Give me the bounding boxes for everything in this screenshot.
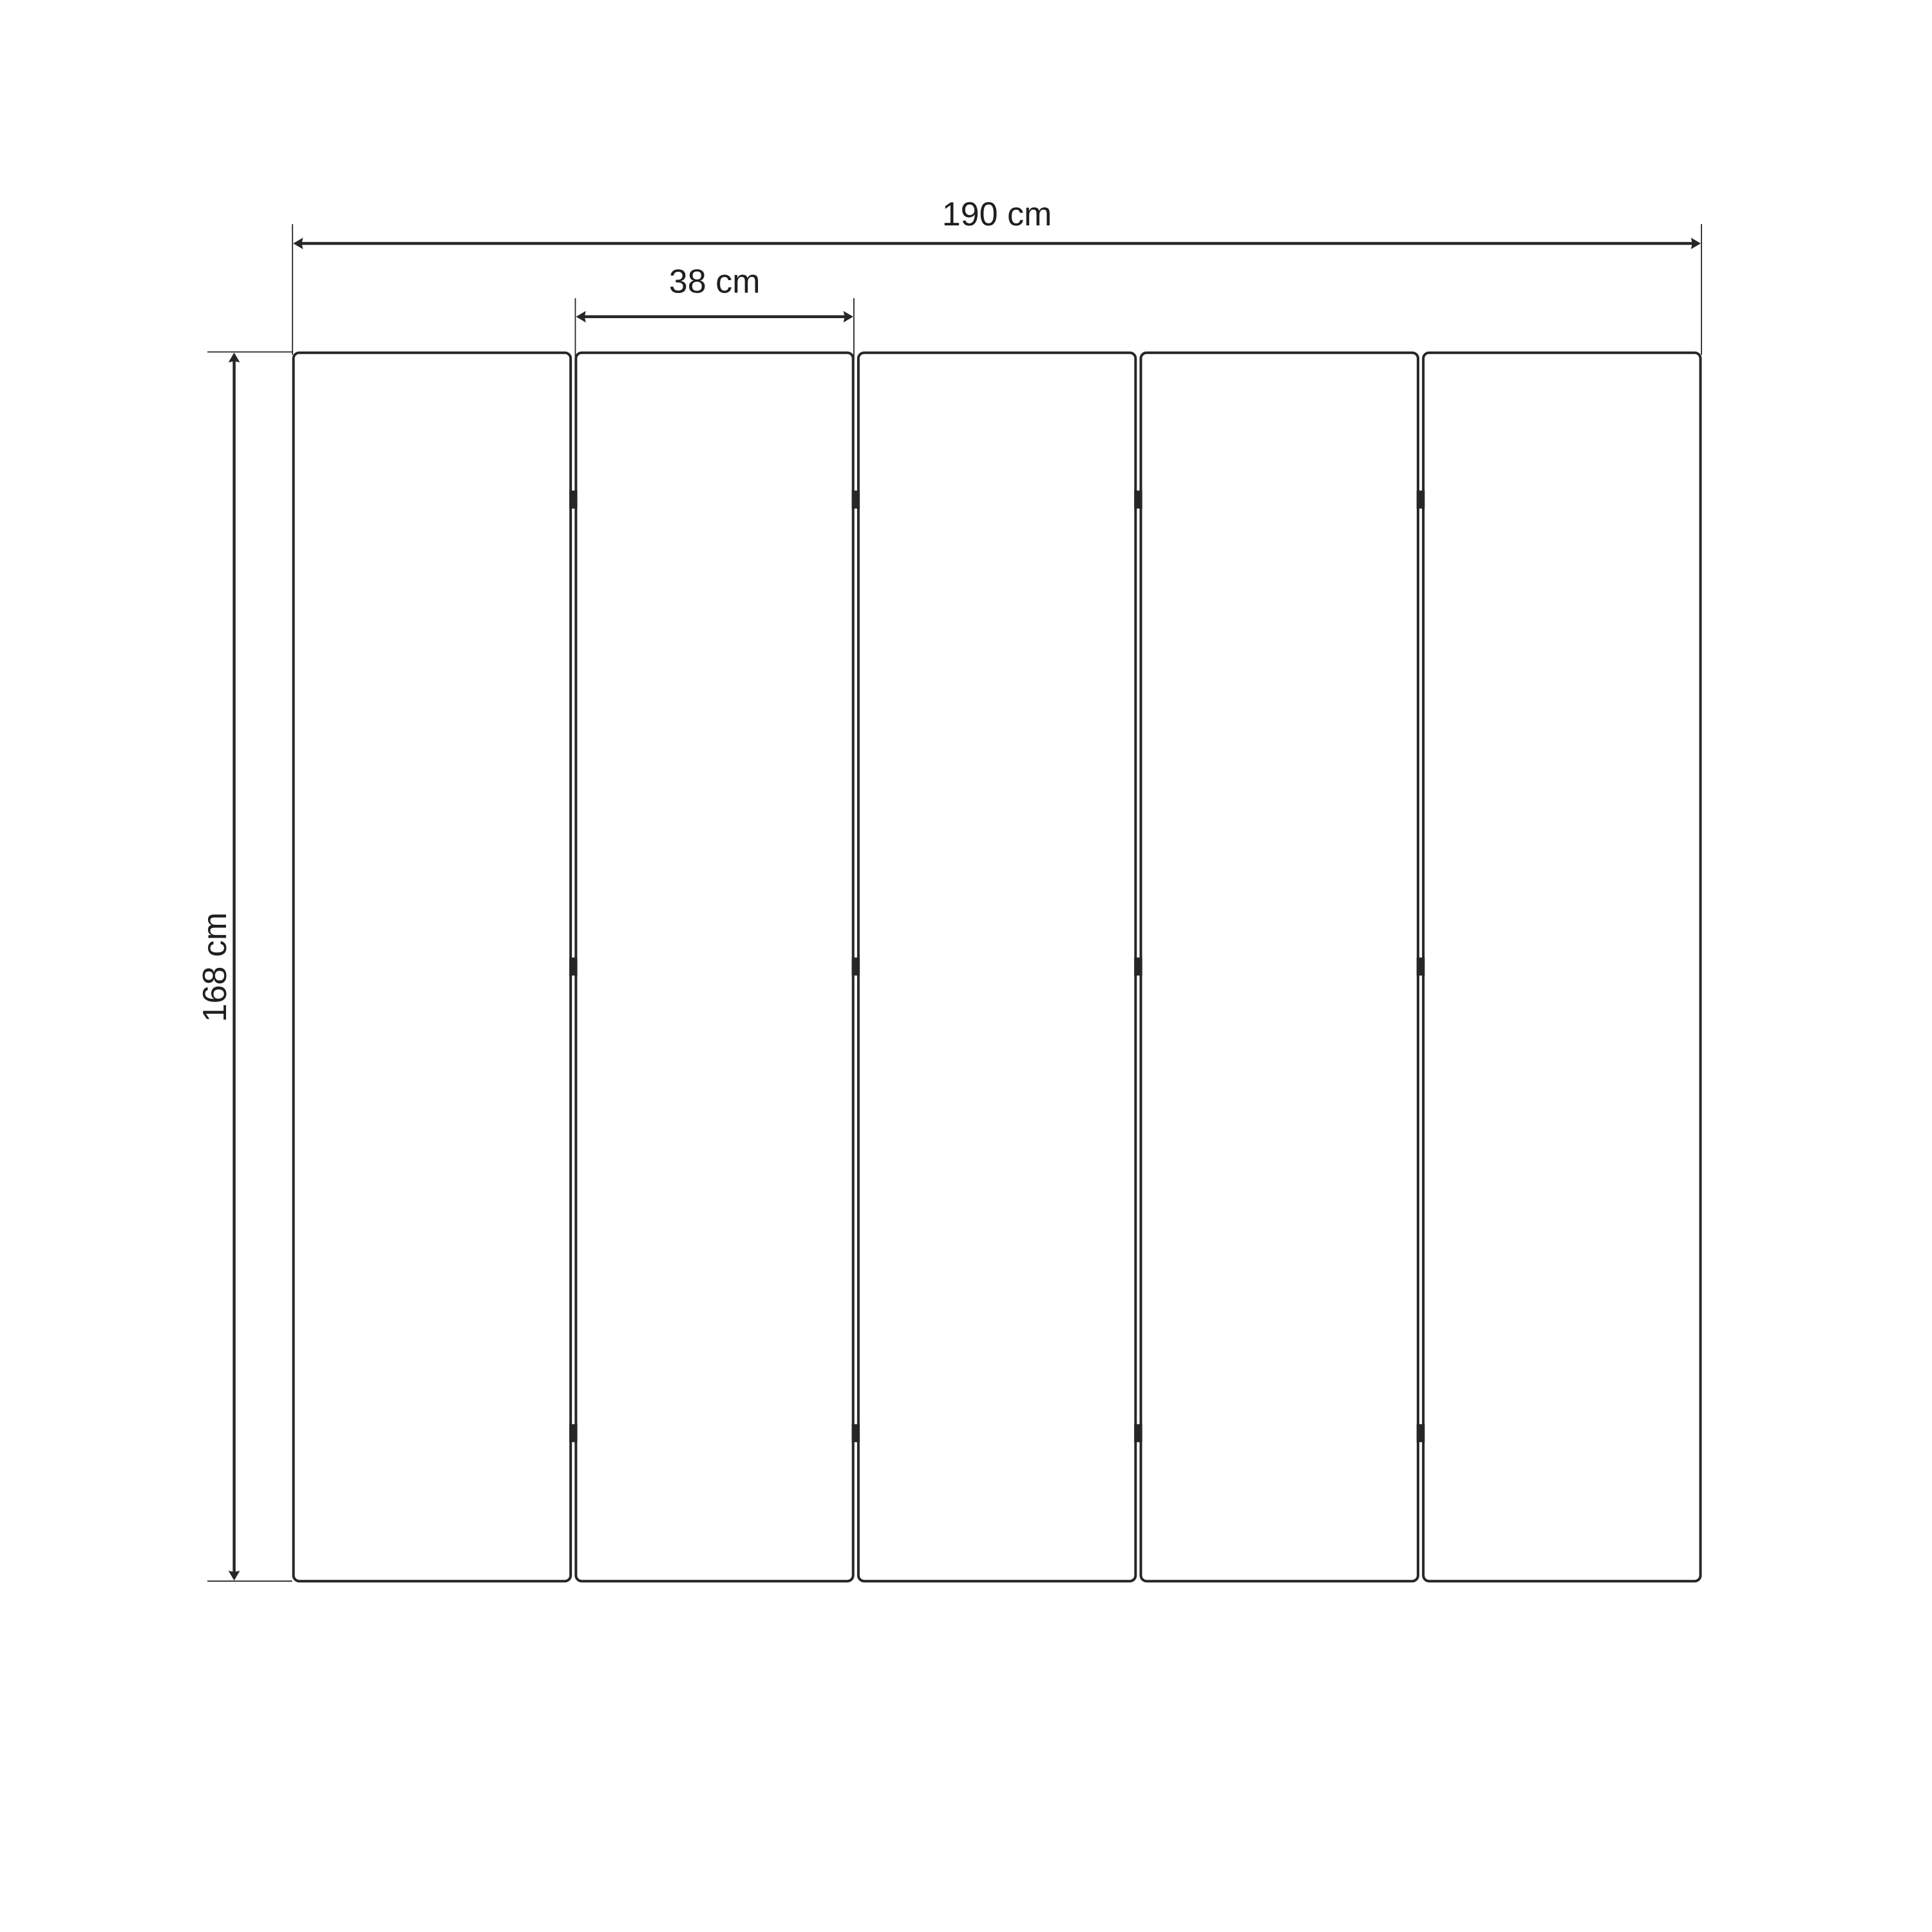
svg-text:168 cm: 168 cm: [196, 913, 234, 1023]
svg-text:38 cm: 38 cm: [669, 263, 761, 301]
svg-text:190 cm: 190 cm: [942, 196, 1052, 233]
